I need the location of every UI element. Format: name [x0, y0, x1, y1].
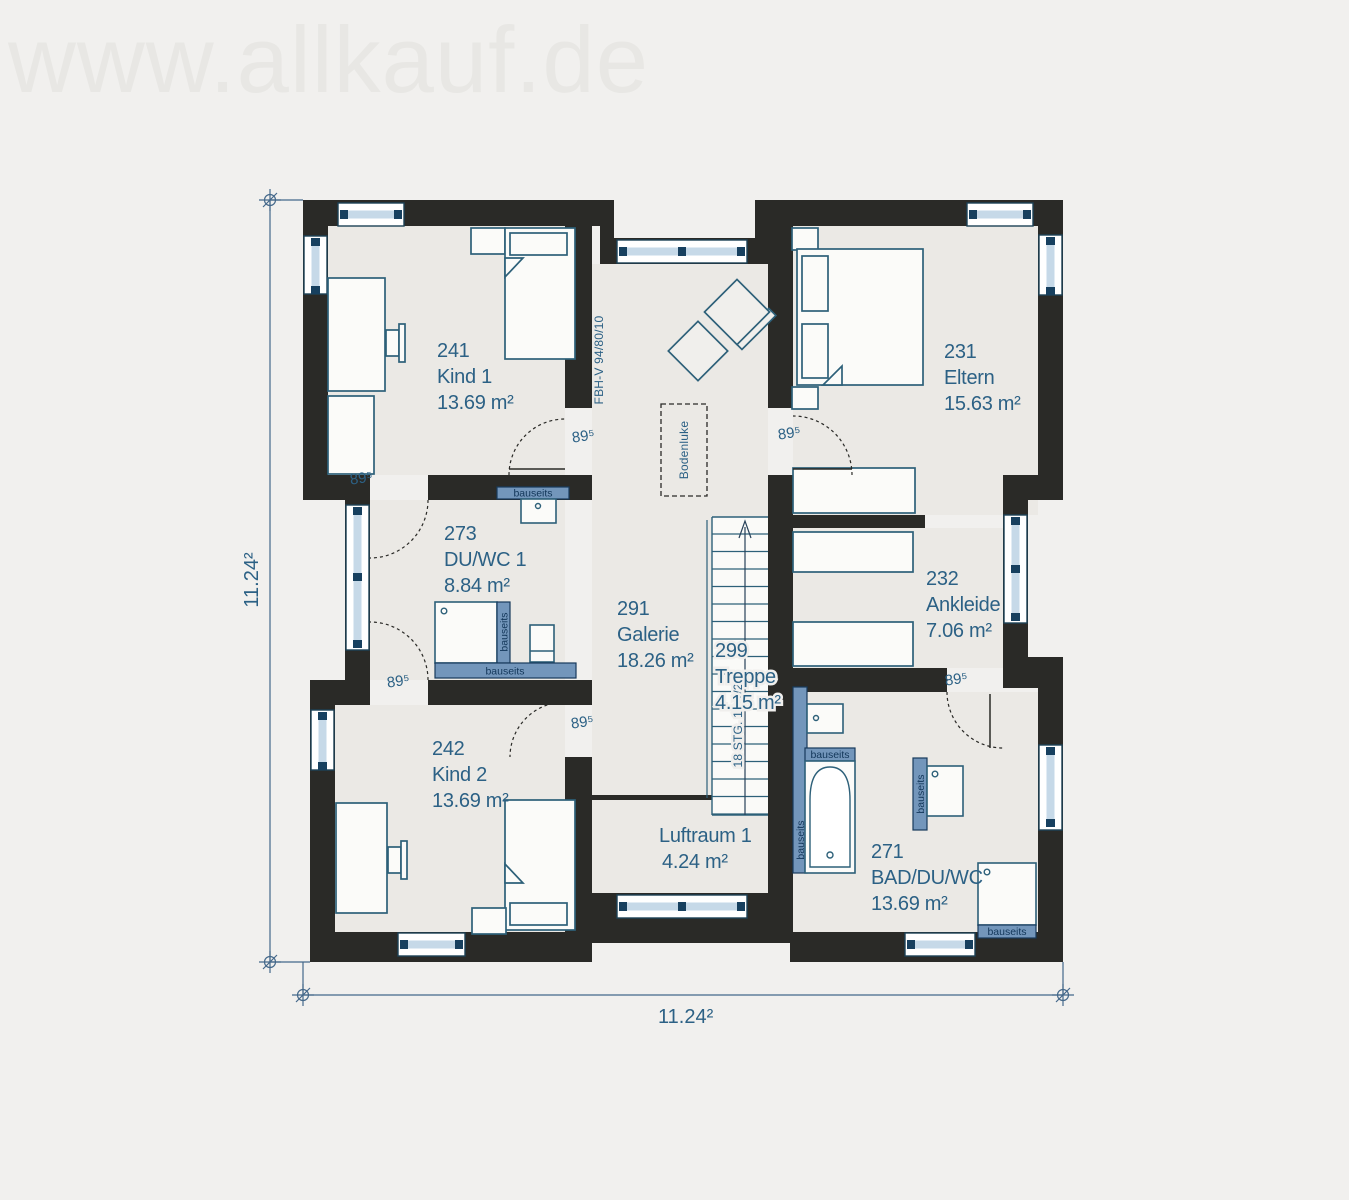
shower-duwc1: [435, 602, 497, 663]
bodenluke-label: Bodenluke: [677, 421, 691, 480]
room-name: DU/WC 1: [444, 549, 527, 571]
room-name: Eltern: [944, 367, 994, 389]
bauseits-label: bauseits: [485, 666, 524, 678]
door-width-label: 89⁵: [570, 713, 595, 733]
room-area: 8.84 m²: [444, 575, 510, 597]
window-kind2-bottom: [398, 933, 465, 956]
stairs-spec-label: 18 STG. 18.1/25: [731, 676, 745, 767]
dimension-label-left: 11.24²: [241, 552, 263, 608]
chair-kind2: [388, 847, 401, 873]
bauseits-label: bauseits: [513, 488, 552, 500]
window-eltern-top: [967, 203, 1033, 226]
room-area: 18.26 m²: [617, 650, 694, 672]
wardrobe-eltern: [793, 468, 915, 513]
room-area: 13.69 m²: [871, 893, 948, 915]
room-number: 241: [437, 340, 470, 362]
pillow-eltern-1: [802, 256, 828, 311]
window-luftraum-bottom: [617, 895, 747, 918]
door-width-label: 89⁵: [571, 427, 596, 447]
window-eltern-right: [1039, 235, 1062, 295]
window-bad-right: [1039, 745, 1062, 830]
room-number: 299: [715, 640, 748, 662]
room-number: 232: [926, 568, 959, 590]
room-area: 4.24 m²: [662, 851, 728, 873]
nightstand-eltern-2: [792, 387, 818, 409]
window-galerie-top: [617, 240, 747, 263]
room-number: 231: [944, 341, 977, 363]
bauseits-label: bauseits: [810, 749, 849, 761]
wardrobe-ankleide-1: [793, 532, 913, 572]
desk-kind2: [336, 803, 387, 913]
room-number: 242: [432, 738, 465, 760]
window-ankleide-right: [1004, 515, 1027, 623]
pillow-kind2: [510, 903, 567, 925]
chair-kind1: [386, 330, 399, 356]
shower-bad: [978, 863, 1036, 925]
bauseits-label: bauseits: [987, 926, 1026, 938]
room-name: Kind 1: [437, 366, 492, 388]
bauseits-label: bauseits: [915, 774, 927, 813]
window-bad-bottom: [905, 933, 975, 956]
cabinet-kind1: [328, 396, 374, 474]
side-table-kind2: [472, 908, 506, 934]
room-number: 271: [871, 841, 904, 863]
door-width-label: 89⁵: [944, 670, 969, 690]
room-area: 7.06 m²: [926, 620, 992, 642]
room-name: BAD/DU/WC: [871, 867, 983, 889]
window-duwc1-left: [346, 505, 369, 650]
door-width-label: 89⁵: [386, 672, 411, 692]
dimension-label-bottom: 11.24²: [658, 1006, 714, 1028]
nightstand-eltern-1: [792, 228, 818, 250]
room-area: 13.69 m²: [437, 392, 514, 414]
wardrobes: [793, 468, 915, 666]
bauseits-label: bauseits: [499, 612, 511, 651]
washbasin-duwc1: [521, 499, 556, 523]
wc-duwc1: [530, 625, 554, 662]
window-kind1-left: [304, 236, 327, 294]
floor-plan-svg: www.allkauf.de: [0, 0, 1349, 1200]
window-kind2-left: [311, 710, 334, 770]
window-kind1-top: [338, 203, 404, 226]
shelf-kind1: [471, 228, 505, 254]
luftraum-railing: [592, 795, 712, 800]
furniture-eltern: [792, 228, 923, 409]
pillow-kind1: [510, 233, 567, 255]
room-area: 4.15 m²: [715, 692, 781, 714]
room-name: Luftraum 1: [659, 825, 752, 847]
room-name: Ankleide: [926, 594, 1000, 616]
floor-heating-label: FBH-V 94/80/10: [592, 315, 606, 404]
watermark-text: www.allkauf.de: [7, 7, 649, 112]
room-name: Kind 2: [432, 764, 487, 786]
room-name: Treppe: [715, 666, 776, 688]
wc-bad: [807, 704, 843, 733]
room-number: 291: [617, 598, 650, 620]
desk-kind1: [328, 278, 385, 391]
room-area: 15.63 m²: [944, 393, 1021, 415]
floor-plan-page: www.allkauf.de: [0, 0, 1349, 1200]
pillow-eltern-2: [802, 324, 828, 378]
door-width-label: 89⁵: [349, 469, 374, 489]
door-width-label: 89⁵: [777, 424, 802, 444]
wardrobe-ankleide-2: [793, 622, 913, 666]
room-name: Galerie: [617, 624, 680, 646]
room-area: 13.69 m²: [432, 790, 509, 812]
room-number: 273: [444, 523, 477, 545]
